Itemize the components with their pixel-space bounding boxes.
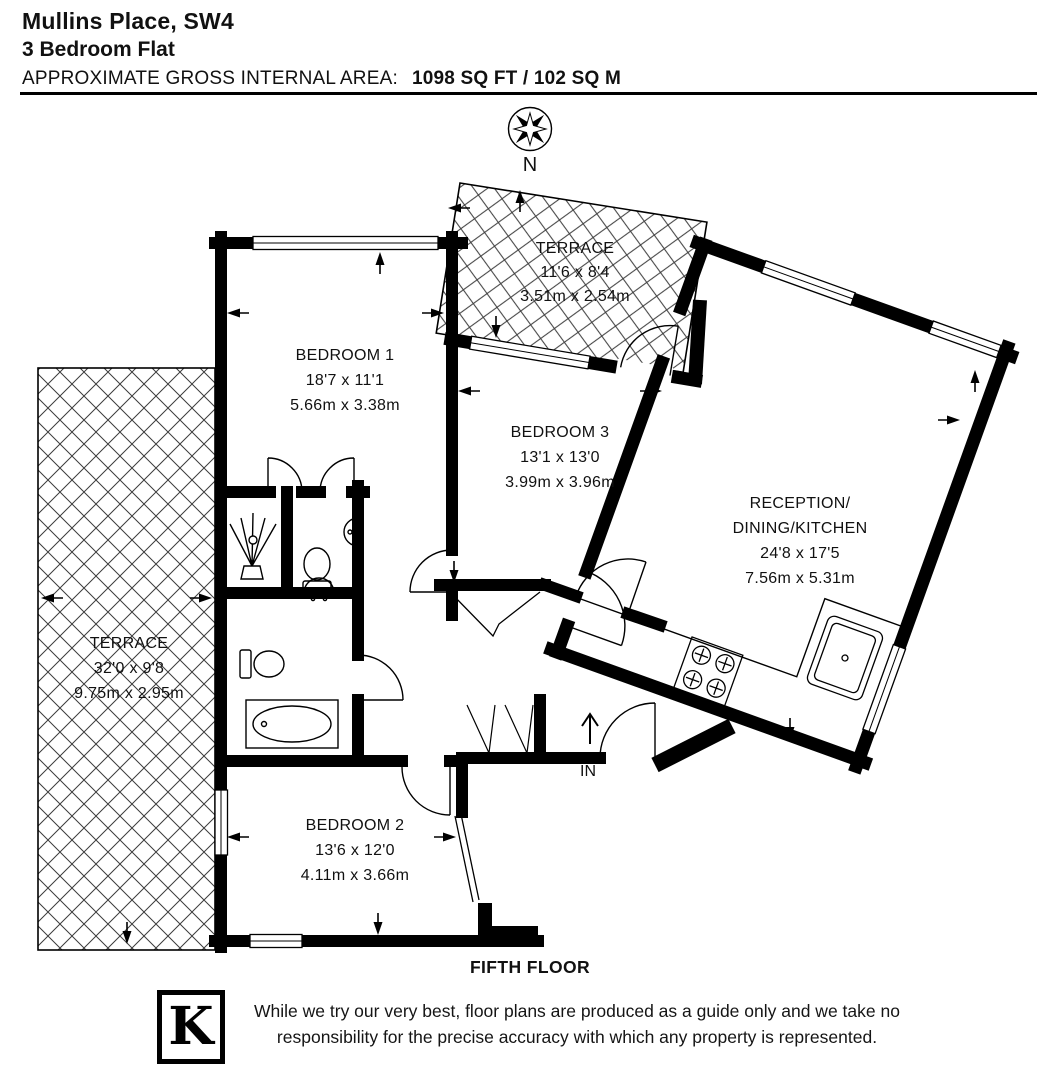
disclaimer-text: While we try our very best, floor plans … bbox=[232, 998, 922, 1050]
floorplan-drawing: N bbox=[0, 0, 1056, 1080]
svg-text:3.51m x 2.54m: 3.51m x 2.54m bbox=[520, 288, 630, 305]
closet-doors bbox=[467, 705, 533, 753]
entry-wall-jog bbox=[655, 726, 732, 765]
entrance-arrow-icon bbox=[582, 714, 598, 744]
svg-text:18'7 x 11'1: 18'7 x 11'1 bbox=[306, 372, 385, 389]
svg-text:RECEPTION/: RECEPTION/ bbox=[750, 495, 851, 512]
svg-text:BEDROOM 3: BEDROOM 3 bbox=[511, 424, 610, 441]
kitchen-sink-icon bbox=[805, 614, 884, 701]
compass-north-label: N bbox=[523, 154, 537, 176]
svg-text:11'6 x 8'4: 11'6 x 8'4 bbox=[540, 264, 609, 281]
disclaimer-line-2: responsibility for the precise accuracy … bbox=[277, 1027, 877, 1047]
svg-text:7.56m x 5.31m: 7.56m x 5.31m bbox=[745, 570, 855, 587]
svg-text:4.11m x 3.66m: 4.11m x 3.66m bbox=[301, 867, 410, 884]
wall-block bbox=[478, 903, 492, 931]
entrance-label: IN bbox=[580, 763, 596, 780]
svg-text:5.66m x 3.38m: 5.66m x 3.38m bbox=[290, 397, 400, 414]
svg-text:9.75m x 2.95m: 9.75m x 2.95m bbox=[74, 685, 184, 702]
label-reception: RECEPTION/ DINING/KITCHEN 24'8 x 17'5 7.… bbox=[733, 495, 868, 587]
room-terrace-left bbox=[38, 368, 215, 950]
floorplan-page: { "header": { "title": "Mullins Place, S… bbox=[0, 0, 1056, 1080]
svg-text:13'6 x 12'0: 13'6 x 12'0 bbox=[315, 842, 395, 859]
shower-icon bbox=[230, 513, 276, 579]
toilet-icon bbox=[303, 548, 331, 593]
bay-window bbox=[450, 592, 540, 636]
svg-text:TERRACE: TERRACE bbox=[90, 635, 169, 652]
floor-label: FIFTH FLOOR bbox=[470, 957, 590, 977]
disclaimer-line-1: While we try our very best, floor plans … bbox=[254, 1001, 900, 1021]
terrace-wall-jog bbox=[695, 300, 700, 384]
svg-text:3.99m x 3.96m: 3.99m x 3.96m bbox=[505, 474, 615, 491]
label-bedroom-3: BEDROOM 3 13'1 x 13'0 3.99m x 3.96m bbox=[505, 424, 615, 491]
svg-text:24'8 x 17'5: 24'8 x 17'5 bbox=[760, 545, 840, 562]
label-bedroom-2: BEDROOM 2 13'6 x 12'0 4.11m x 3.66m bbox=[301, 817, 410, 884]
svg-text:TERRACE: TERRACE bbox=[536, 240, 615, 257]
bathtub-icon bbox=[246, 700, 338, 748]
label-bedroom-1: BEDROOM 1 18'7 x 11'1 5.66m x 3.38m bbox=[290, 347, 400, 414]
svg-text:BEDROOM 2: BEDROOM 2 bbox=[306, 817, 405, 834]
svg-text:32'0 x 9'8: 32'0 x 9'8 bbox=[94, 660, 165, 677]
compass-rose-icon bbox=[509, 108, 552, 151]
svg-text:13'1 x 13'0: 13'1 x 13'0 bbox=[520, 449, 600, 466]
svg-text:DINING/KITCHEN: DINING/KITCHEN bbox=[733, 520, 868, 537]
toilet-icon bbox=[240, 650, 284, 678]
svg-text:BEDROOM 1: BEDROOM 1 bbox=[296, 347, 395, 364]
agency-logo: K bbox=[157, 990, 225, 1064]
